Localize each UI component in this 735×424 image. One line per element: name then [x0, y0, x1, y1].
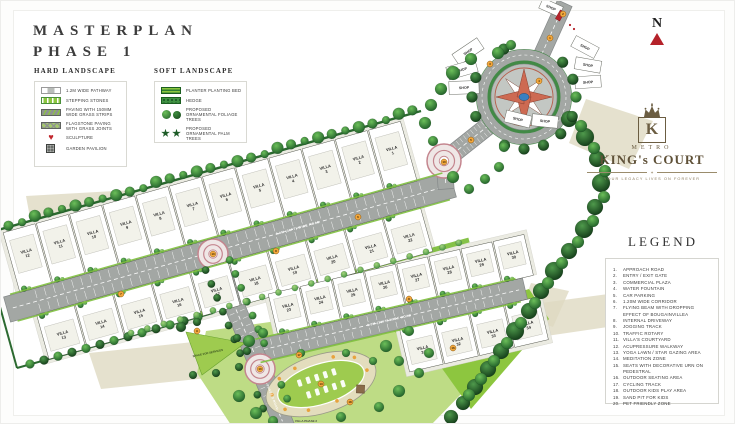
landscape-item: HEDGE [161, 97, 242, 104]
svg-text:18: 18 [348, 400, 352, 404]
plan-marker: 10 [441, 159, 447, 165]
paving-grass-strips-swatch [41, 109, 61, 116]
hard-landscape-legend: 1.2M WIDE PATHWAYSTEPPING STONESPAVING W… [34, 81, 127, 167]
landscape-item-label: 1.2M WIDE PATHWAY [66, 88, 112, 93]
foliage-trees-swatch [161, 111, 181, 118]
water-fountain [519, 93, 529, 100]
masterplan-canvas: VILLA12VILLA11VILLA10VILLA9VILLA8VILLA7V… [0, 0, 735, 424]
brand-monogram: K [646, 121, 658, 139]
north-indicator: N [646, 17, 668, 45]
brand-tagline: YOUR LEGACY LIVES ON FOREVER [579, 177, 725, 181]
soft-landscape-legend: PLANTER PLANTING BEDHEDGEPROPOSED ORNAME… [154, 81, 247, 143]
plan-marker: 2 [560, 11, 566, 17]
phase2-area-label: VILLA PHASE 2 [295, 419, 318, 423]
hedge-swatch [161, 97, 181, 104]
shop-plot: SHOP [571, 36, 600, 59]
svg-text:16: 16 [451, 346, 455, 350]
plan-marker: 8 [273, 248, 279, 254]
landscape-item: ♥SCULPTURE [41, 134, 122, 141]
landscape-item-label: GARDEN PAVILION [66, 146, 107, 151]
landscape-item-label: PLANTER PLANTING BED [186, 88, 241, 93]
svg-text:10: 10 [442, 160, 446, 164]
legend-item: 20.PET FRIENDLY ZONE [612, 401, 713, 407]
legend-heading: LEGEND [601, 234, 725, 250]
landscape-item-label: PROPOSED ORNAMENTAL PALM TREES [186, 126, 242, 141]
stepping-stones-swatch [41, 97, 61, 104]
plan-marker: 16 [450, 345, 456, 351]
palm-trees-swatch [161, 130, 181, 137]
north-label: N [646, 17, 668, 31]
landscape-item: PLANTER PLANTING BED [161, 87, 242, 94]
plan-marker: 8 [406, 296, 412, 302]
phase-title: PHASE 1 [33, 42, 198, 63]
plan-marker: 18 [347, 399, 353, 405]
shop-plot: SHOP [574, 57, 602, 73]
soft-landscape-heading: SOFT LANDSCAPE [154, 67, 234, 75]
shop-plot: SHOP [531, 114, 558, 129]
brand-ornament: ✦ [587, 170, 717, 175]
masterplan-title: MASTERPLAN [33, 21, 198, 42]
landscape-item-label: FLAGSTONE PAVING WITH GRASS JOINTS [66, 121, 122, 131]
svg-text:SHOP: SHOP [583, 80, 594, 85]
svg-text:17: 17 [297, 353, 301, 357]
landscape-item: GARDEN PAVILION [41, 144, 122, 153]
plan-marker: 9 [194, 328, 200, 334]
svg-text:SHOP: SHOP [459, 86, 470, 90]
north-arrow-icon [650, 33, 664, 45]
page-title: MASTERPLAN PHASE 1 [33, 21, 198, 63]
plan-marker: 3 [487, 61, 493, 67]
landscape-item: PROPOSED ORNAMENTAL PALM TREES [161, 126, 242, 141]
landscape-item: PROPOSED ORNAMENTAL FOLIAGE TREES [161, 107, 242, 122]
crown-icon [640, 103, 664, 118]
legend-item: 15.SEATS WITH DECORATIVE URN ON PEDESTRA… [612, 363, 713, 376]
garden-pavilion [356, 385, 364, 393]
brand-monogram-box: K [638, 117, 666, 143]
landscape-item-label: STEPPING STONES [66, 98, 108, 103]
legend-list: 1.APPROACH ROAD2.ENTRY / EXIT GATE3.COMM… [605, 258, 719, 404]
plan-marker: 1 [547, 35, 553, 41]
landscape-item: STEPPING STONES [41, 97, 122, 104]
landscape-item-label: PAVING WITH 150MM WIDE GRASS STRIPS [66, 107, 122, 117]
svg-text:10: 10 [258, 367, 262, 371]
landscape-item: PAVING WITH 150MM WIDE GRASS STRIPS [41, 107, 122, 117]
svg-text:13: 13 [319, 382, 323, 386]
legend-item: 7.FLYING BEAM WITH DROPPING EFFECT OF BO… [612, 305, 713, 318]
plan-marker: 5 [468, 137, 474, 143]
planter-bed-swatch [161, 87, 181, 94]
sculpture-swatch: ♥ [41, 134, 61, 141]
flagstone-paving-swatch [41, 122, 61, 129]
brand-name-main: KING's COURT [579, 152, 725, 168]
plan-marker: 13 [318, 381, 324, 387]
brand-logo: K METRO KING's COURT ✦ YOUR LEGACY LIVES… [579, 103, 725, 181]
landscape-item-label: SCULPTURE [66, 135, 93, 140]
plan-marker: 4 [536, 78, 542, 84]
shop-plot: SHOP [575, 75, 602, 89]
landscape-item: FLAGSTONE PAVING WITH GRASS JOINTS [41, 121, 122, 131]
plan-marker: 7 [118, 291, 124, 297]
hard-landscape-heading: HARD LANDSCAPE [34, 67, 116, 75]
plan-marker: 17 [296, 352, 302, 358]
brand-name-top: METRO [579, 145, 725, 151]
landscape-item: 1.2M WIDE PATHWAY [41, 87, 122, 94]
garden-pavilion-swatch [46, 144, 55, 153]
landscape-item-label: PROPOSED ORNAMENTAL FOLIAGE TREES [186, 107, 242, 122]
plan-marker: 10 [210, 251, 216, 257]
plan-marker: 6 [355, 214, 361, 220]
pathway-swatch [41, 87, 61, 94]
svg-text:10: 10 [211, 252, 215, 256]
landscape-item-label: HEDGE [186, 98, 202, 103]
plan-marker: 10 [257, 366, 263, 372]
